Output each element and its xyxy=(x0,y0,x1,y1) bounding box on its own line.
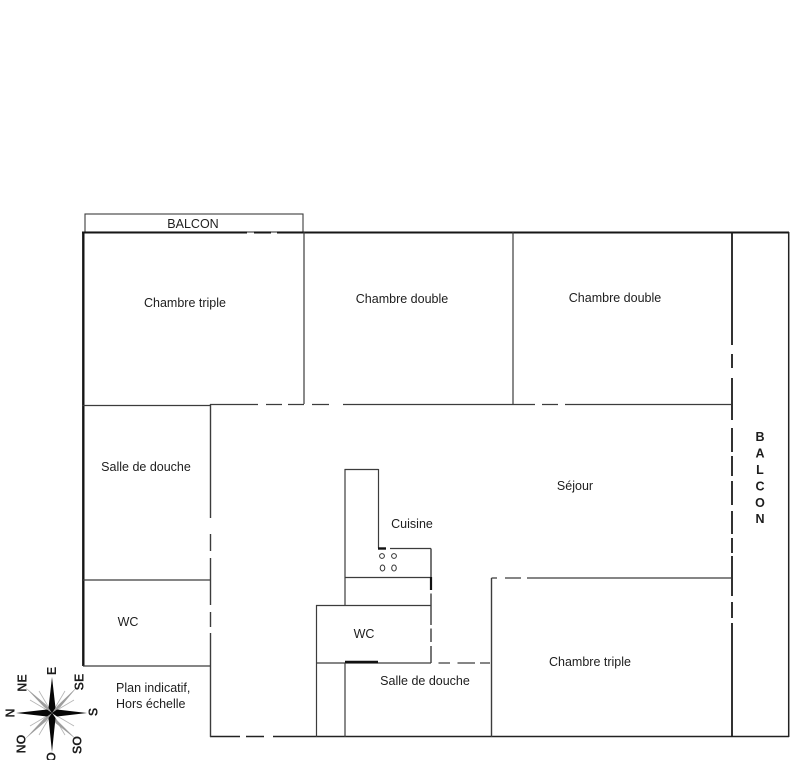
svg-text:SE: SE xyxy=(72,674,86,691)
svg-text:Cuisine: Cuisine xyxy=(391,517,433,531)
svg-text:O: O xyxy=(755,496,765,510)
svg-text:E: E xyxy=(45,667,59,675)
svg-text:Chambre triple: Chambre triple xyxy=(549,655,631,669)
svg-text:Chambre triple: Chambre triple xyxy=(144,296,226,310)
svg-text:Chambre double: Chambre double xyxy=(569,291,661,305)
svg-text:C: C xyxy=(755,480,764,494)
svg-text:B: B xyxy=(755,430,764,444)
svg-text:BALCON: BALCON xyxy=(167,217,218,231)
svg-text:O: O xyxy=(44,752,58,760)
svg-text:S: S xyxy=(86,708,100,716)
svg-text:L: L xyxy=(756,463,764,477)
svg-text:WC: WC xyxy=(354,627,375,641)
svg-text:Séjour: Séjour xyxy=(557,479,593,493)
svg-text:Plan indicatif,: Plan indicatif, xyxy=(116,681,190,695)
svg-text:N: N xyxy=(3,708,17,717)
svg-text:Hors échelle: Hors échelle xyxy=(116,697,186,711)
svg-text:SO: SO xyxy=(70,736,84,754)
svg-text:NE: NE xyxy=(15,674,29,691)
svg-text:Chambre double: Chambre double xyxy=(356,292,448,306)
svg-text:NO: NO xyxy=(14,734,28,753)
svg-text:A: A xyxy=(755,447,764,461)
svg-text:WC: WC xyxy=(118,615,139,629)
svg-text:N: N xyxy=(755,512,764,526)
svg-text:Salle de douche: Salle de douche xyxy=(101,460,191,474)
svg-text:Salle de douche: Salle de douche xyxy=(380,674,470,688)
